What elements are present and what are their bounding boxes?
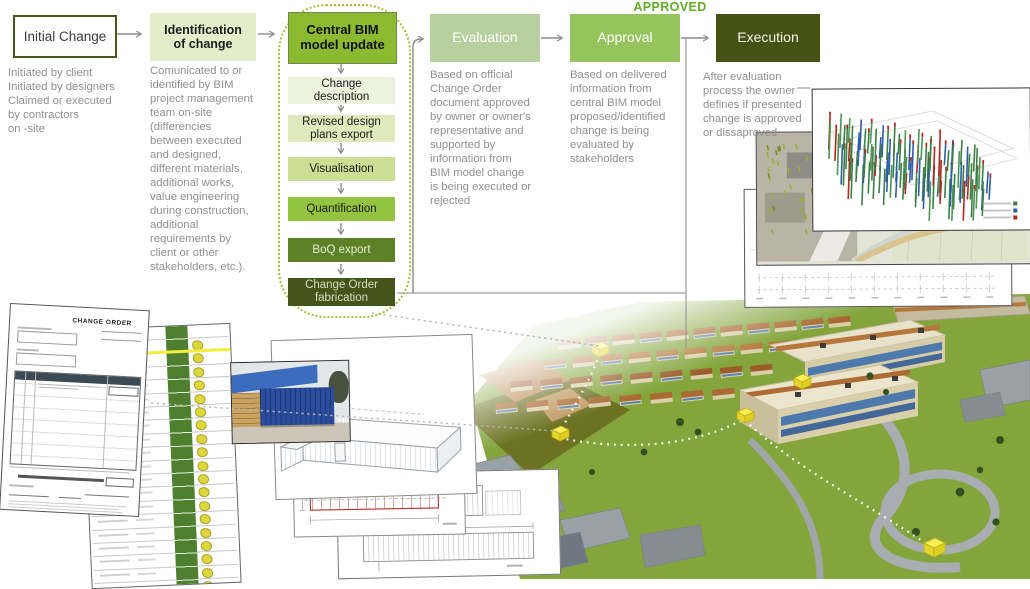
flow-stage-initial-change: Initial Change xyxy=(13,15,117,58)
substep-change-order-fabrication: Change Order fabrication xyxy=(288,278,395,306)
desc-execution: After evaluation process the owner defin… xyxy=(703,70,818,140)
desc-evaluation: Based on official Change Order document … xyxy=(430,68,552,208)
photo-timber-stack xyxy=(232,393,261,428)
drawing-dimension-lines xyxy=(757,276,995,290)
substep-change-description: Change description xyxy=(288,77,395,104)
pile-model-3d-image xyxy=(812,87,1030,231)
flow-stage-evaluation: Evaluation xyxy=(430,14,540,62)
desc-initial-change: Initiated by client Initiated by designe… xyxy=(8,66,138,136)
stage-label-approval: Approval xyxy=(597,30,652,46)
substep-quantification: Quantification xyxy=(288,197,395,221)
containers-photo-image: FiHi xyxy=(230,360,351,444)
substep-visualisation: Visualisation xyxy=(288,157,395,181)
flow-stage-approval: Approval xyxy=(570,14,680,62)
stage-label-identification: Identification of change xyxy=(164,23,242,51)
stage-label-central: Central BIM model update xyxy=(300,23,385,52)
change-order-table xyxy=(10,370,142,471)
stage-label-evaluation: Evaluation xyxy=(452,30,517,46)
pile-model-legend xyxy=(983,201,1017,219)
photo-blue-containers: FiHi xyxy=(260,387,335,427)
stage-label-execution: Execution xyxy=(737,30,798,46)
substep-revised-design-plans-export: Revised design plans export xyxy=(288,115,395,142)
change-order-title: CHANGE ORDER xyxy=(62,317,142,328)
substep-boq-export: BoQ export xyxy=(288,238,395,262)
stage-label-initial: Initial Change xyxy=(24,29,107,44)
flow-stage-central-bim-update: Central BIM model update xyxy=(288,12,397,64)
change-order-document-image: CHANGE ORDER xyxy=(0,303,150,517)
desc-approval: Based on delivered information from cent… xyxy=(570,68,692,166)
pile-model-bars xyxy=(829,111,991,222)
desc-identification: Comunicated to or identified by BIM proj… xyxy=(150,64,268,274)
flow-stage-execution: Execution xyxy=(716,14,820,62)
flow-stage-identification: Identification of change xyxy=(150,13,256,61)
approved-label: APPROVED xyxy=(603,0,737,14)
connector-fabrication-to-evaluation xyxy=(413,39,423,293)
container-logo-text: FiHi xyxy=(338,418,348,424)
